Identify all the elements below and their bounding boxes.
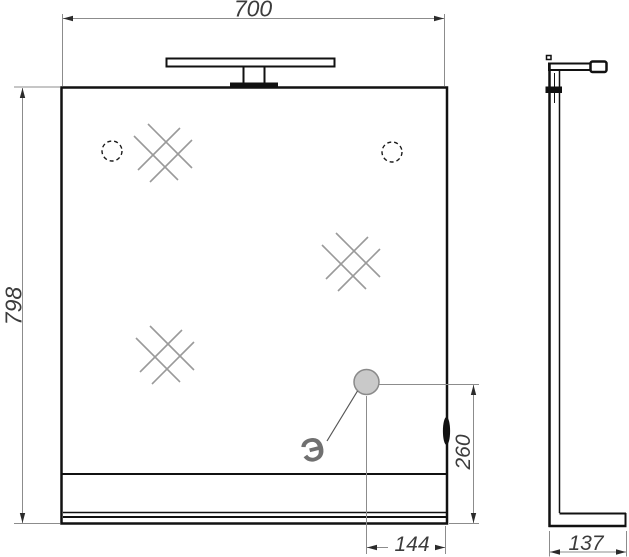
electric-point-icon xyxy=(354,370,379,395)
dim-arrow-right-icon xyxy=(434,16,444,21)
dim-side-depth-value: 137 xyxy=(568,532,604,555)
side-view xyxy=(546,56,627,528)
edge-switch-icon xyxy=(443,417,450,445)
dim-arrow-left-icon xyxy=(550,549,560,554)
side-wall-tab xyxy=(547,56,552,60)
side-lamp-head xyxy=(591,62,607,73)
drawing-svg: Э 700 798 144 xyxy=(0,0,629,557)
dim-arrow-left-icon xyxy=(367,545,377,550)
dim-socket-height-value: 260 xyxy=(452,434,475,470)
side-mount-block xyxy=(546,87,563,94)
dim-front-width-value: 700 xyxy=(234,0,273,22)
front-view: Э xyxy=(62,59,451,524)
dim-front-height-value: 798 xyxy=(1,287,27,326)
dim-side-depth: 137 xyxy=(550,531,627,557)
dim-arrow-left-icon xyxy=(63,16,73,21)
dim-arrow-up-icon xyxy=(471,385,476,395)
dim-arrow-down-icon xyxy=(20,513,25,523)
lamp-bar xyxy=(167,59,335,67)
mirror-outline xyxy=(62,88,448,524)
dim-arrow-right-icon xyxy=(435,545,445,550)
technical-drawing-canvas: Э 700 798 144 xyxy=(0,0,629,557)
dim-socket-offset-value: 144 xyxy=(394,533,429,556)
dim-arrow-up-icon xyxy=(20,88,25,98)
dim-front-height: 798 xyxy=(1,87,61,524)
dim-front-width: 700 xyxy=(63,0,445,86)
dim-arrow-down-icon xyxy=(471,513,476,523)
dim-arrow-right-icon xyxy=(616,549,626,554)
